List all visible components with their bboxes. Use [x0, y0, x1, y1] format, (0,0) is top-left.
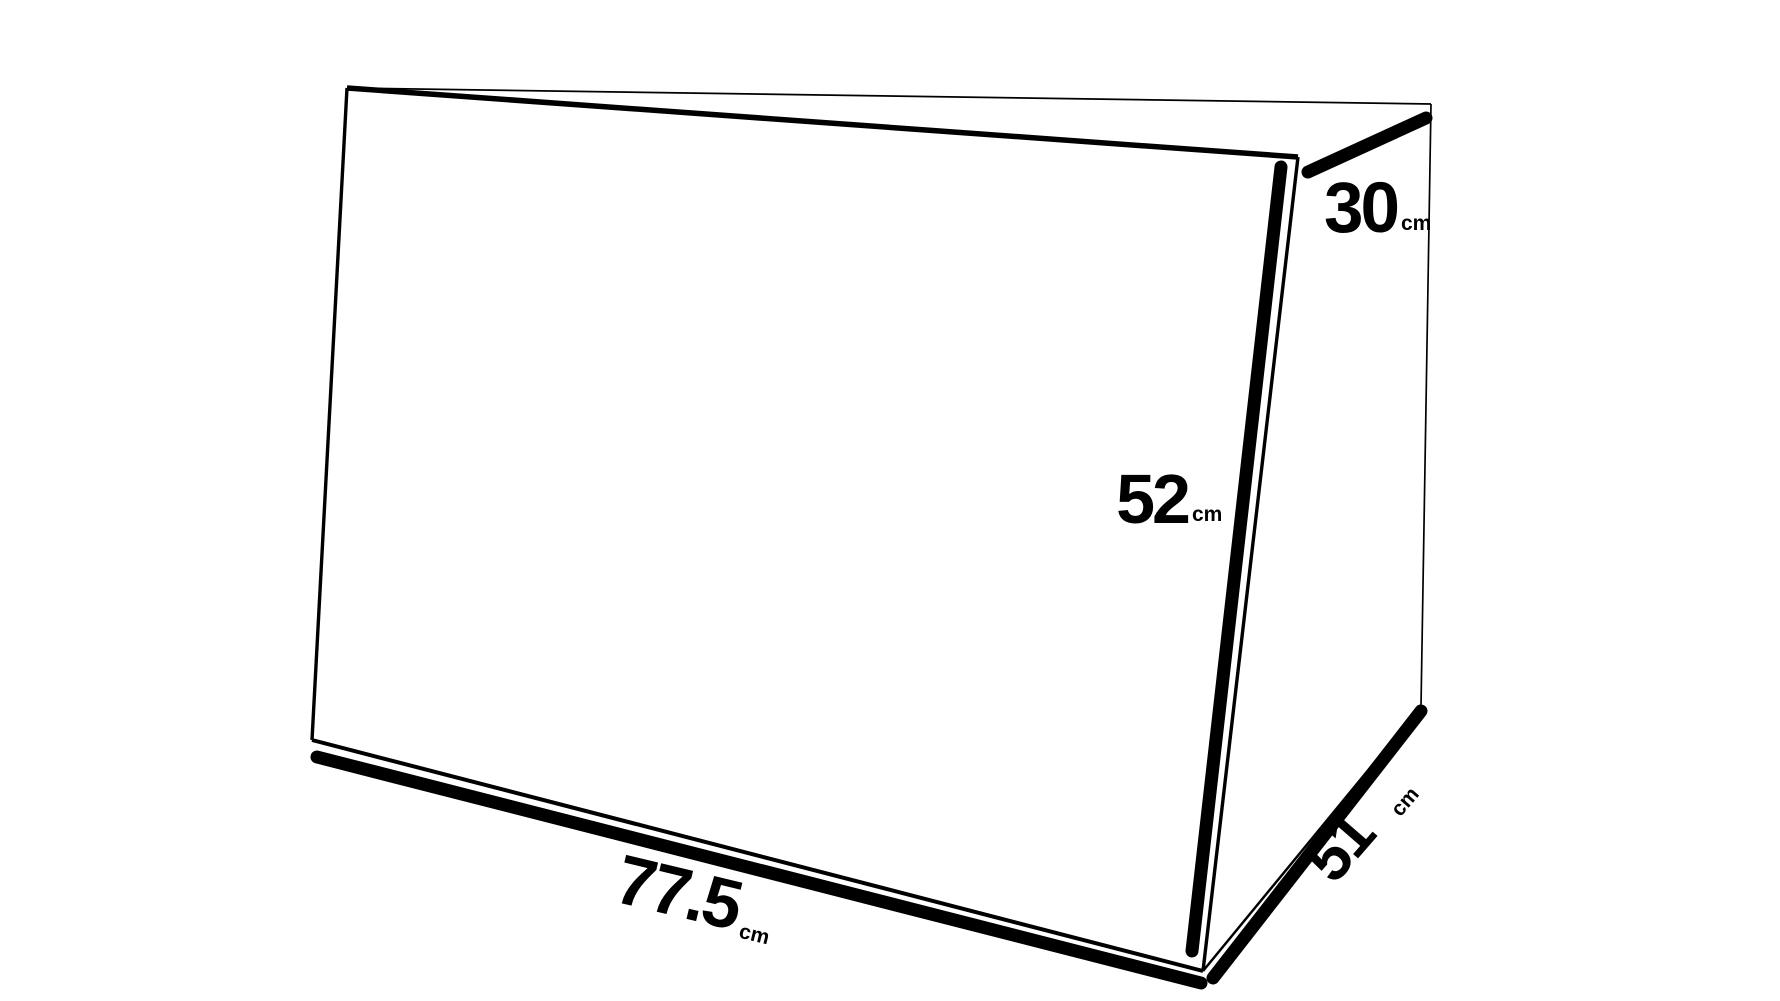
- width-dimension-bar: [317, 757, 1201, 983]
- box-front-right-edge: [1203, 157, 1298, 971]
- top-depth-dimension-value: 30: [1324, 169, 1397, 248]
- top-depth-dimension-unit: cm: [1401, 212, 1431, 235]
- box-dimensions-diagram: 30 cm 52 cm 77.5 cm 51 cm: [0, 0, 1780, 1001]
- depth-dimension-value: 51: [1290, 798, 1388, 895]
- height-dimension-bar: [1192, 167, 1281, 951]
- width-dimension-unit: cm: [737, 920, 772, 949]
- depth-dimension-label: 51 cm: [1290, 753, 1427, 895]
- height-dimension-value: 52: [1116, 460, 1189, 538]
- box-side-back-edge: [1421, 104, 1431, 706]
- height-dimension-unit: cm: [1192, 503, 1222, 526]
- top-depth-dimension-bar: [1308, 118, 1426, 172]
- depth-dimension-unit: cm: [1387, 783, 1424, 821]
- box-front-left-edge: [312, 88, 347, 740]
- box-front-top-edge: [347, 88, 1298, 157]
- box-dimensions-canvas: 30 cm 52 cm 77.5 cm 51 cm: [0, 0, 1780, 1001]
